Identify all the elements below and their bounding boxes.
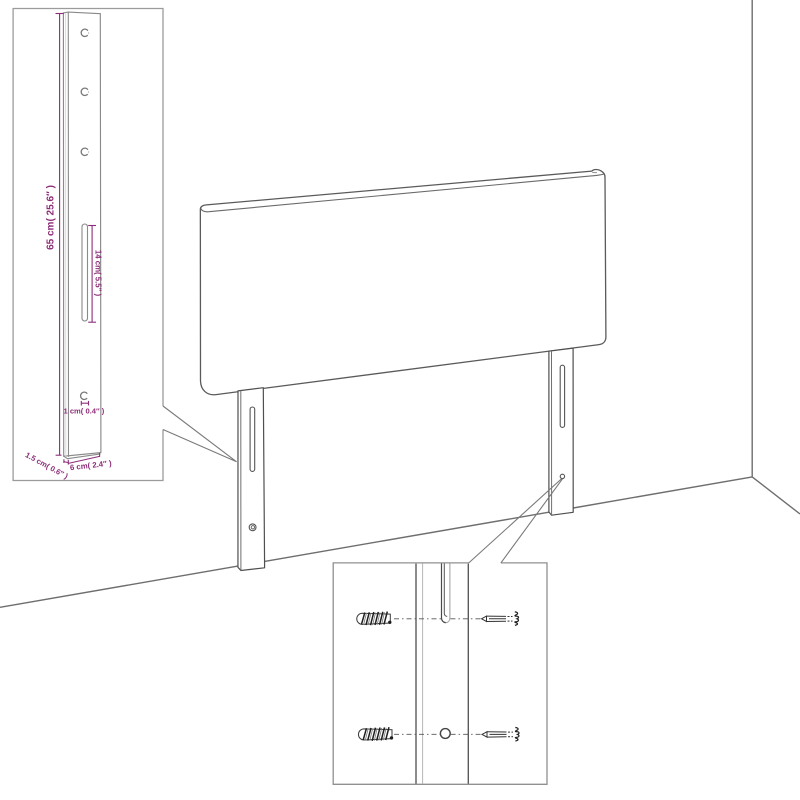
svg-text:1.5 cm( 0.6″ ): 1.5 cm( 0.6″ ) — [24, 450, 70, 481]
svg-text:6 cm( 2.4″ ): 6 cm( 2.4″ ) — [69, 459, 112, 473]
svg-text:1 cm( 0.4″ ): 1 cm( 0.4″ ) — [64, 407, 105, 416]
svg-text:65 cm( 25.6″ ): 65 cm( 25.6″ ) — [45, 185, 56, 250]
svg-text:14 cm( 5.5″ ): 14 cm( 5.5″ ) — [93, 250, 102, 297]
